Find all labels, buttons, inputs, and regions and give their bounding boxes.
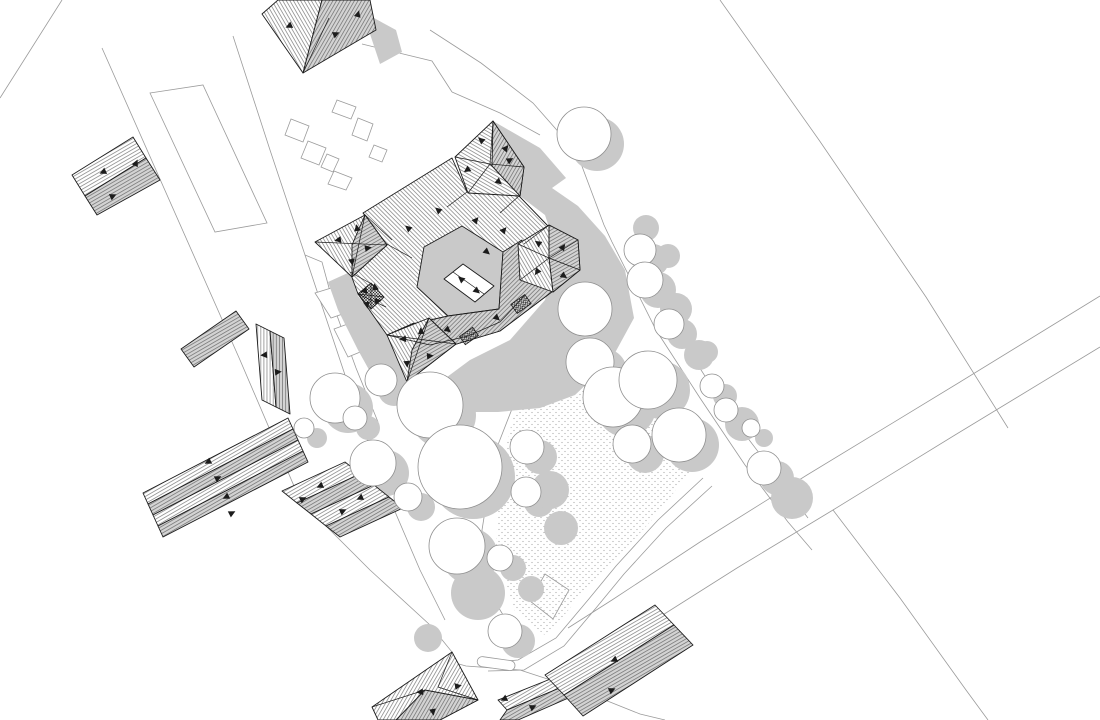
- tree: [714, 398, 738, 422]
- tree: [558, 282, 612, 336]
- plot-outline: [362, 44, 452, 92]
- plot-outline: [332, 100, 356, 119]
- tree-shadow: [771, 477, 813, 519]
- tree: [652, 408, 706, 462]
- road-line: [0, 0, 62, 98]
- plot-outline: [328, 171, 352, 190]
- tree: [624, 234, 656, 266]
- traffic-island: [477, 656, 516, 671]
- tree: [365, 364, 397, 396]
- plot-outline: [285, 119, 309, 142]
- tree: [510, 430, 544, 464]
- plot-outline: [321, 154, 339, 172]
- site-plan-page: [0, 0, 1100, 720]
- slope-arrow-icon: [228, 508, 237, 517]
- plot-outline: [352, 118, 373, 141]
- building-long-house-bottom-right: [545, 605, 693, 716]
- tree: [487, 545, 513, 571]
- tree-shadow: [656, 244, 680, 268]
- tree: [350, 440, 396, 486]
- tree: [627, 262, 663, 298]
- road-line: [720, 0, 1008, 428]
- building-hip-house-bottom: [372, 652, 478, 720]
- island-layer: [477, 656, 516, 671]
- building-long-barn-southwest: [143, 324, 308, 537]
- tree: [700, 374, 724, 398]
- tree: [742, 419, 760, 437]
- tree: [429, 518, 485, 574]
- tree: [747, 451, 781, 485]
- building-shed-bar-west: [181, 311, 249, 367]
- road-line: [833, 510, 988, 720]
- tree-shadow: [696, 341, 718, 363]
- tree: [343, 406, 367, 430]
- roof-hatch: [181, 311, 249, 367]
- tree: [418, 425, 502, 509]
- tree: [557, 107, 611, 161]
- site-plan: [0, 0, 1100, 720]
- tree: [394, 483, 422, 511]
- tree-shadow: [414, 624, 442, 652]
- tree: [619, 351, 677, 409]
- plot-outline: [301, 141, 326, 165]
- tree: [294, 418, 314, 438]
- tree-shadow: [544, 511, 578, 545]
- tree: [488, 614, 522, 648]
- tree: [613, 425, 651, 463]
- plot-outline: [369, 145, 387, 162]
- tree: [654, 309, 684, 339]
- plot-outline: [150, 85, 267, 232]
- tree: [511, 477, 541, 507]
- tree-shadow: [518, 576, 544, 602]
